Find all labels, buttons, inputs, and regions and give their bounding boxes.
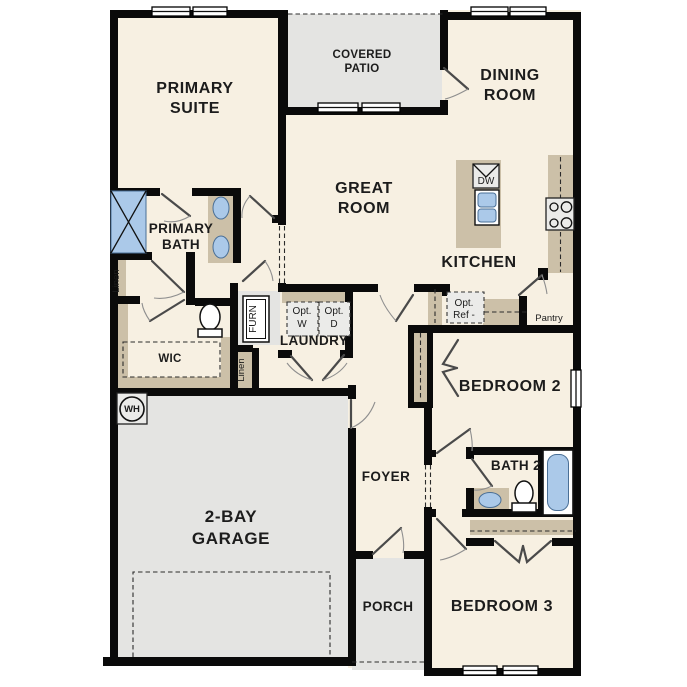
label-bath2: BATH 2 [491, 458, 541, 473]
wh-label: WH [124, 404, 140, 415]
vanity-sink-2 [213, 236, 229, 258]
svg-text:ROOM: ROOM [484, 87, 536, 104]
svg-text:Ref -: Ref - [453, 310, 475, 321]
svg-text:GARAGE: GARAGE [192, 529, 270, 548]
room-covered-patio [286, 14, 442, 109]
range [546, 198, 574, 230]
bedroom3-closet [470, 520, 576, 535]
label-foyer: FOYER [362, 469, 411, 484]
floor-plan: WH FURN DW [0, 0, 687, 687]
label-great-room: GREAT [335, 180, 393, 197]
label-kitchen: KITCHEN [441, 254, 516, 271]
label-pantry: Pantry [535, 313, 563, 324]
label-wic: WIC [158, 353, 181, 365]
label-porch: PORCH [363, 599, 414, 614]
label-opt-w: Opt. [293, 306, 312, 317]
label-primary-bath: PRIMARY [149, 221, 214, 236]
label-primary-suite: PRIMARY [156, 80, 233, 97]
svg-text:W: W [297, 319, 307, 330]
water-heater: WH [117, 393, 147, 424]
primary-toilet [198, 304, 222, 337]
label-bedroom3: BEDROOM 3 [451, 598, 553, 615]
label-laundry: LAUNDRY [280, 333, 348, 348]
window [152, 7, 190, 16]
window [362, 103, 400, 112]
label-opt-d: Opt. [325, 306, 344, 317]
svg-text:BATH: BATH [162, 237, 200, 252]
bathtub [543, 450, 573, 515]
laundry-counter [282, 291, 348, 303]
shower [111, 191, 146, 253]
label-dining-room: DINING [480, 67, 540, 84]
furnace: FURN [243, 296, 269, 342]
furn-label: FURN [248, 305, 259, 333]
dishwasher: DW [473, 164, 499, 188]
window [318, 103, 358, 112]
label-garage: 2-BAY [205, 507, 258, 526]
label-linen-primary: Linen [111, 269, 122, 292]
window [463, 666, 497, 675]
svg-text:ROOM: ROOM [338, 200, 390, 217]
patio-top-outside [286, 5, 442, 14]
svg-text:D: D [330, 319, 337, 330]
window [471, 7, 508, 16]
label-bedroom2: BEDROOM 2 [459, 378, 561, 395]
dw-label: DW [478, 176, 495, 187]
svg-text:SUITE: SUITE [170, 100, 220, 117]
label-opt-ref: Opt. [455, 298, 474, 309]
room-porch [352, 558, 425, 670]
window [571, 370, 581, 407]
outside-below-garage [103, 666, 348, 687]
window [510, 7, 546, 16]
label-covered-patio: COVERED [333, 49, 392, 61]
label-linen-hall: Linen [236, 358, 247, 381]
floor-plan-page: WH FURN DW [0, 0, 687, 687]
window [503, 666, 538, 675]
bath2-sink [479, 493, 501, 508]
vanity-sink-1 [213, 197, 229, 219]
svg-text:PATIO: PATIO [345, 63, 380, 75]
window [193, 7, 227, 16]
island-sink [475, 190, 499, 225]
